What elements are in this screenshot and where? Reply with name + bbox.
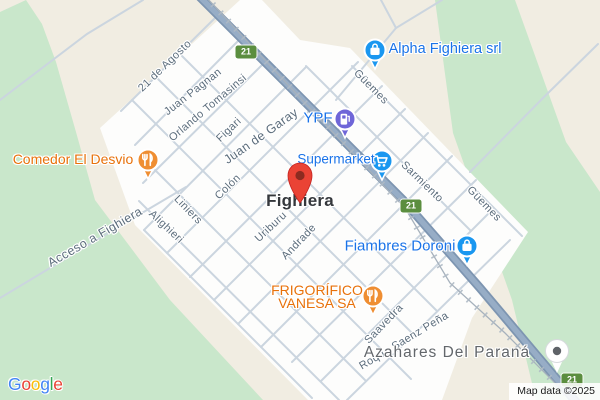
poi-marker-azahares-del-parana[interactable] <box>542 337 572 375</box>
poi-label-frigorifico-vanesa[interactable]: FRIGORÍFICO VANESA SA <box>271 284 363 310</box>
poi-label-fiambres-doroni[interactable]: Fiambres Doroni <box>345 238 456 255</box>
restaurant-icon <box>359 283 387 317</box>
place-dot-icon <box>542 337 572 375</box>
poi-label-alpha-fighiera[interactable]: Alpha Fighiera srl <box>389 41 502 57</box>
google-logo-letter: G <box>8 374 21 394</box>
route-21-shield: 21 <box>401 200 422 213</box>
poi-label-comedor-el-desvio[interactable]: Comedor El Desvio <box>13 151 134 167</box>
google-logo-letter: o <box>31 374 40 394</box>
google-logo-letter: e <box>53 374 62 394</box>
map-canvas[interactable]: 21 de Agosto Juan Pagnan Orlando Tomasin… <box>0 0 600 400</box>
poi-label-azahares-del-parana[interactable]: Azahares Del Paraná <box>364 344 530 362</box>
poi-marker-fiambres-doroni[interactable] <box>453 233 481 267</box>
shopping-bag-icon <box>361 37 389 71</box>
map-data-attribution: Map data ©2025 <box>509 383 600 400</box>
fuel-icon <box>331 106 359 140</box>
shopping-bag-icon <box>453 233 481 267</box>
route-21-shield: 21 <box>236 46 257 59</box>
poi-label-ypf[interactable]: YPF <box>303 110 332 127</box>
poi-label-frigorifico-line2: VANESA SA <box>271 297 363 310</box>
google-logo[interactable]: Google <box>8 374 63 395</box>
poi-marker-comedor-el-desvio[interactable] <box>134 147 162 181</box>
poi-marker-ypf[interactable] <box>331 106 359 140</box>
map-pin-icon <box>285 160 315 204</box>
map-pin-fighiera[interactable] <box>285 160 315 209</box>
restaurant-icon <box>134 147 162 181</box>
google-logo-letter: o <box>21 374 30 394</box>
poi-marker-alpha-fighiera[interactable] <box>361 37 389 71</box>
google-logo-letter: g <box>40 374 49 394</box>
poi-marker-frigorifico-vanesa[interactable] <box>359 283 387 317</box>
